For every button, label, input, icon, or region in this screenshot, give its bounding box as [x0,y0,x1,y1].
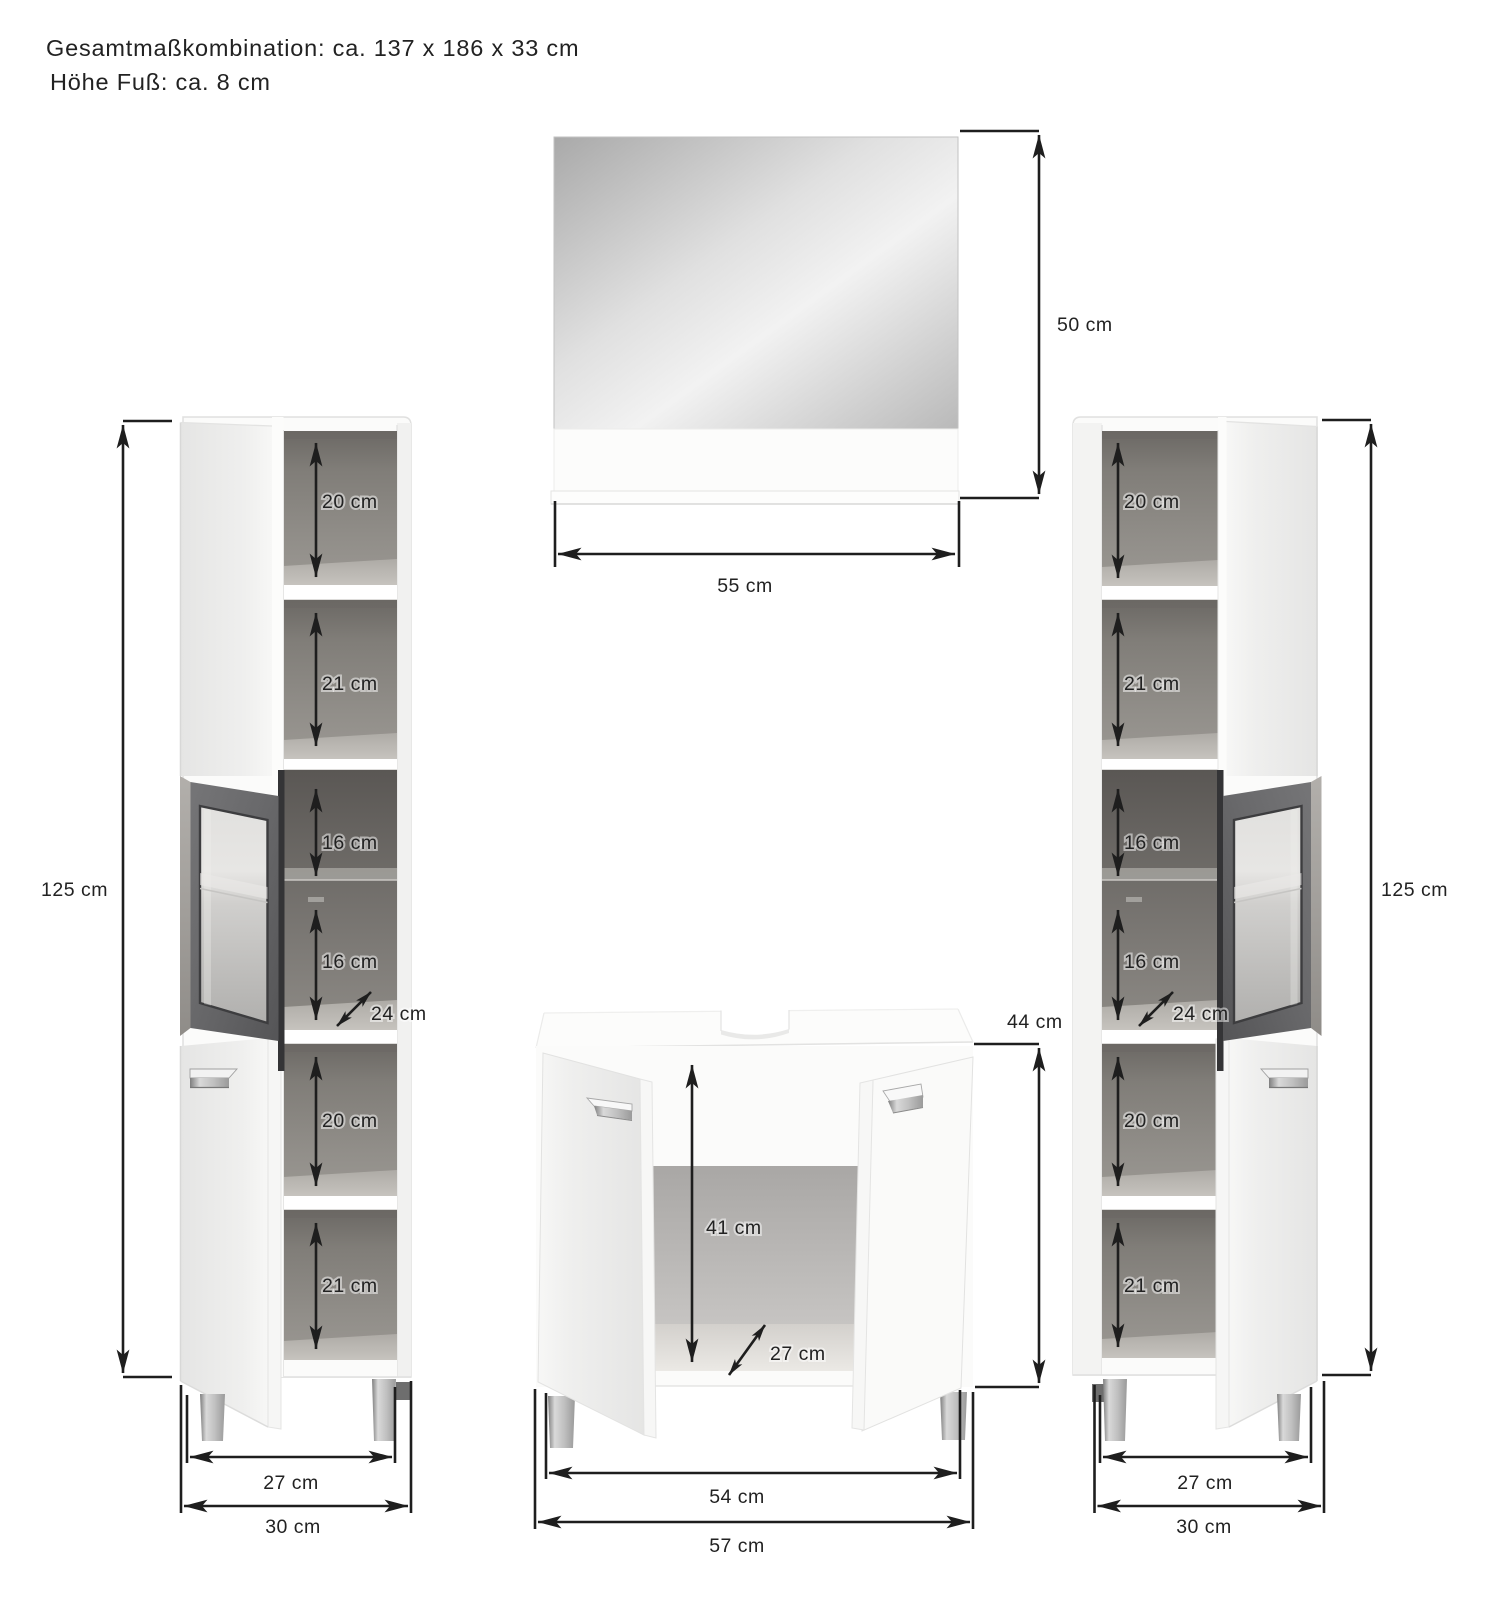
svg-text:27 cm: 27 cm [770,1343,826,1365]
svg-text:21 cm: 21 cm [322,1275,378,1297]
svg-text:125 cm: 125 cm [41,879,108,901]
svg-text:16 cm: 16 cm [1124,951,1180,973]
svg-text:20 cm: 20 cm [1124,491,1180,513]
svg-text:27 cm: 27 cm [263,1472,319,1494]
svg-text:24 cm: 24 cm [371,1003,427,1025]
svg-text:20 cm: 20 cm [1124,1110,1180,1132]
svg-text:41 cm: 41 cm [706,1217,762,1239]
svg-text:16 cm: 16 cm [1124,832,1180,854]
svg-text:20 cm: 20 cm [322,491,378,513]
svg-text:44 cm: 44 cm [1007,1011,1063,1033]
svg-text:30 cm: 30 cm [1176,1516,1232,1538]
svg-text:16 cm: 16 cm [322,832,378,854]
svg-text:21 cm: 21 cm [1124,673,1180,695]
svg-text:57 cm: 57 cm [709,1535,765,1557]
svg-text:24 cm: 24 cm [1173,1003,1229,1025]
svg-text:21 cm: 21 cm [322,673,378,695]
svg-text:50 cm: 50 cm [1057,314,1113,336]
svg-text:20 cm: 20 cm [322,1110,378,1132]
svg-text:21 cm: 21 cm [1124,1275,1180,1297]
svg-text:16 cm: 16 cm [322,951,378,973]
svg-text:27 cm: 27 cm [1177,1472,1233,1494]
svg-text:Höhe Fuß: ca. 8 cm: Höhe Fuß: ca. 8 cm [50,69,271,95]
svg-text:125 cm: 125 cm [1381,879,1448,901]
svg-text:55 cm: 55 cm [717,575,773,597]
svg-text:30 cm: 30 cm [265,1516,321,1538]
svg-text:54 cm: 54 cm [709,1486,765,1508]
svg-text:Gesamtmaßkombination: ca. 137: Gesamtmaßkombination: ca. 137 x 186 x 33… [46,35,579,61]
